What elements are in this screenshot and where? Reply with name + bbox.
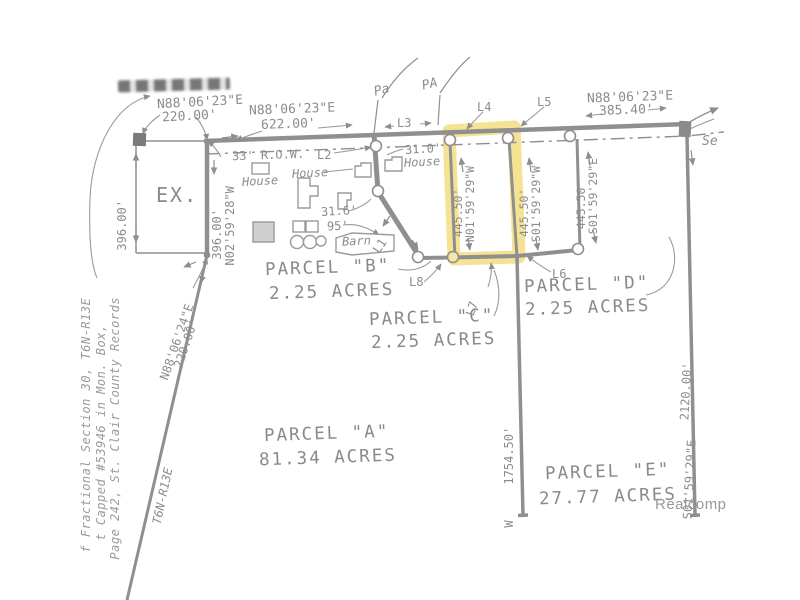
house2-label: House [292,166,329,180]
ex-west-distance: 396.00' [116,200,129,251]
monument-circle [448,252,459,263]
ex-east-bearing: N02'59'28"W [224,186,237,265]
monument-circle [373,186,384,197]
line-label-l8: L8 [409,276,423,289]
monument-circle [413,252,424,263]
house1-footprint [252,163,269,174]
line-label-l3: L3 [397,117,411,130]
boundary-lines [127,57,724,600]
parcel-e-name: PARCEL "E" [545,461,671,484]
monument-circle [573,244,584,255]
parcel-d-east-bearing: S01'59'29"E [587,158,599,234]
parcel-c-name: PARCEL "C" [369,307,495,330]
dim-31-6: 31.6' [321,204,358,218]
line-label-l5: L5 [537,96,551,109]
shed-footprint [253,222,274,242]
parcel-a-name: PARCEL "A" [264,423,390,446]
parcel-b-name: PARCEL "B" [265,257,391,280]
parcel-d-name: PARCEL "D" [524,274,650,297]
ex-east-distance: 396.00' [211,209,224,260]
road-arrow-ne [688,108,718,123]
parcel-c-east-bearing: S01'59'29"W [530,166,542,242]
partial-label-se: Se [702,135,718,149]
silo1 [291,236,304,249]
dim-95: 95' [327,219,349,233]
house3-label: House [404,155,441,169]
survey-note-3: Page 242, St. Clair County Records [109,297,122,560]
parcel-a-east-distance: 1754.50' [503,427,516,485]
notes-leader [90,96,150,278]
monument-circle [371,141,382,152]
house3-footprint [385,157,402,171]
line-label-l4: L4 [477,101,491,114]
distance-top-left: 220.00' [162,109,217,125]
l-building-footprint [298,178,318,208]
silo2 [304,236,317,249]
parcel-a-east-bearing: W [503,520,516,527]
parcel-b-area: 2.25 ACRES [269,281,395,304]
row-label: 33' R.O.W. [232,148,305,163]
distance-top-center: 622.00' [261,117,316,133]
monument-circle [503,133,514,144]
bin2-footprint [306,221,318,232]
corner-dot [205,253,210,258]
survey-note-2: t Capped #53946 in Mon. Box, [95,324,108,540]
monument-nw [133,133,146,146]
monument-ne [679,121,692,138]
house2-footprint [355,163,371,177]
bin1-footprint [293,221,305,232]
parcel-a-area: 81.34 ACRES [259,447,397,470]
house1-label: House [242,174,279,188]
bearing-top-center: N88'06'23"E [249,102,336,119]
line-label-l2: L2 [317,149,331,162]
distance-top-right: 385.40' [599,103,654,119]
parcel-c-area: 2.25 ACRES [371,330,497,353]
ex-parcel-label: EX. [156,185,198,206]
monument-circle [565,131,576,142]
parcel-e-east-distance: 2120.00' [678,362,694,420]
realcomp-watermark: Realcomp [655,497,727,513]
parcel-c-west-bearing: N01'59'29"W [464,166,476,242]
barn-label: Barn [342,234,372,248]
silo3 [316,236,326,246]
monument-circle [445,135,456,146]
parcel-d-area: 2.25 ACRES [525,297,651,320]
survey-note-1: f Fractional Section 30, T6N-R13E [80,298,93,553]
plat-survey-map: N88'06'23"E 220.00' N88'06'23"E 622.00' … [0,0,800,600]
